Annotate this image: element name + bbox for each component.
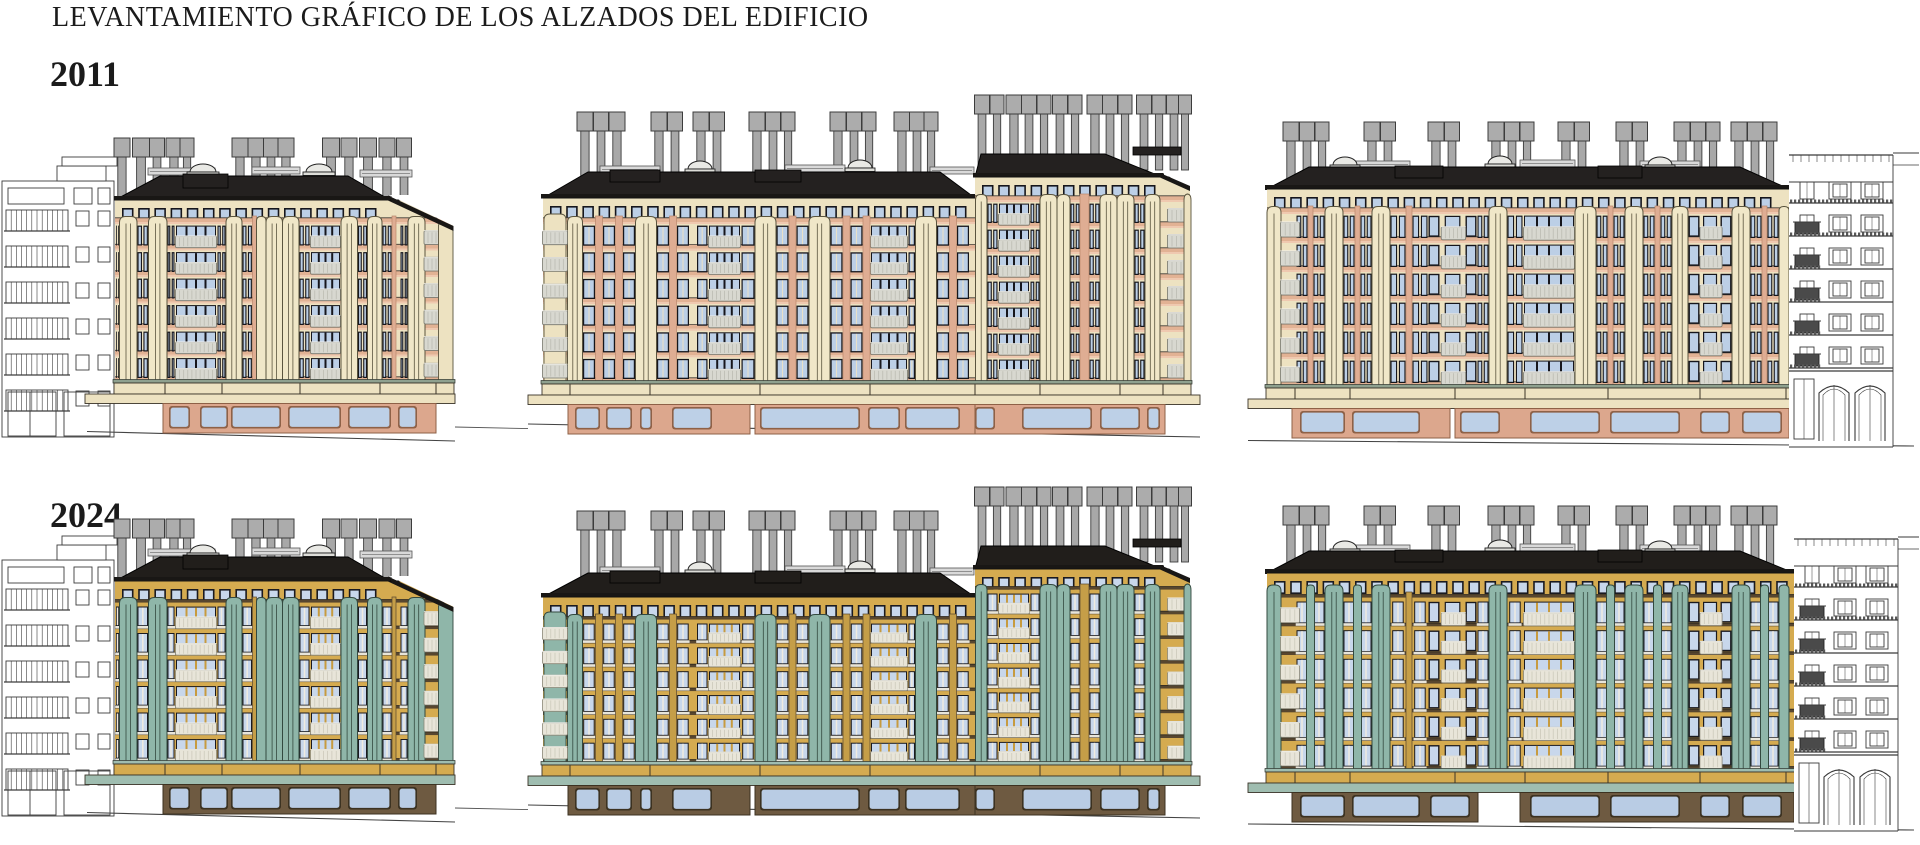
svg-text:2024: 2024 — [50, 495, 122, 535]
svg-text:2011: 2011 — [50, 54, 120, 94]
svg-text:LEVANTAMIENTO GRÁFICO DE LOS A: LEVANTAMIENTO GRÁFICO DE LOS ALZADOS DEL… — [52, 2, 869, 33]
